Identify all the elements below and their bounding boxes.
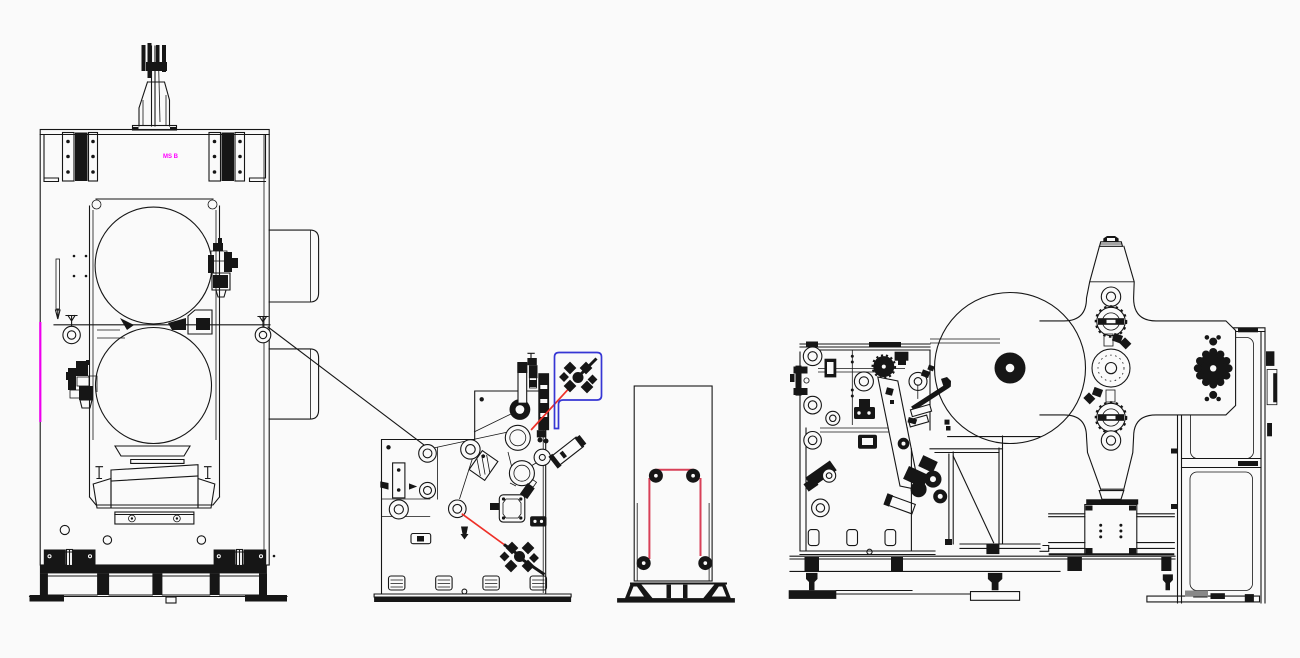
svg-text:MS B: MS B [163, 154, 179, 160]
